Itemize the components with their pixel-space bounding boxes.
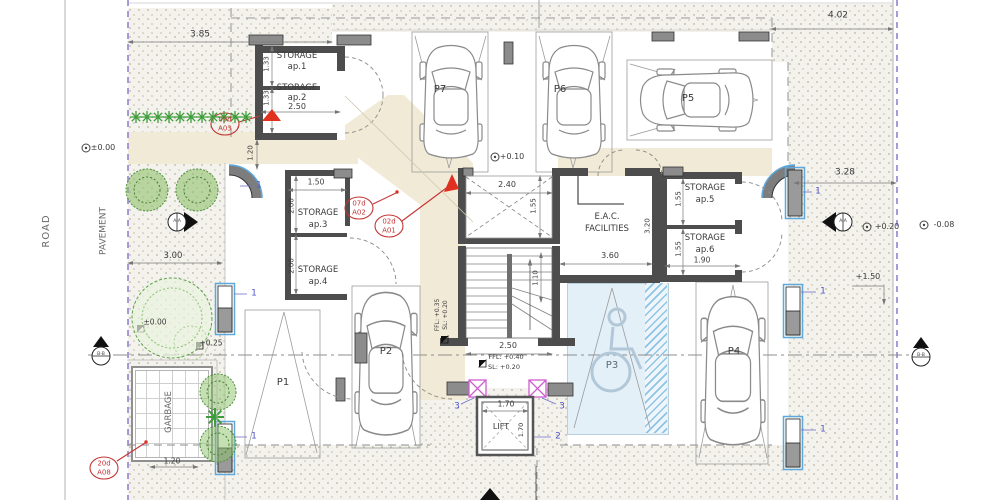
- dim-3-00: 3.00: [164, 252, 183, 261]
- column-label-3a: 3: [454, 403, 460, 412]
- tag-09d: 09d: [218, 117, 231, 124]
- level-sl020-b: SL: +0.20: [488, 364, 520, 371]
- storage5-ap: ap.5: [696, 196, 715, 205]
- level-plus010: +0.10: [500, 153, 525, 161]
- storage2-ap: ap.2: [288, 94, 307, 103]
- dim-1-55-a: 1.55: [676, 191, 683, 207]
- parking-p3-label: P3: [606, 361, 618, 371]
- dim-1-33-b: 1.33: [264, 90, 271, 106]
- section-bb-right: [912, 337, 930, 366]
- dim-3-28: 3.28: [835, 169, 855, 178]
- lift-label: LIFT: [493, 423, 509, 431]
- garbage-label: GARBAGE: [165, 391, 174, 433]
- tag-20d: 20d: [97, 461, 110, 468]
- dim-2-50-stair: 2.50: [499, 342, 517, 350]
- parking-p5-label: P5: [682, 94, 694, 104]
- storage4-label: STORAGE: [298, 266, 338, 275]
- car-p4: [701, 297, 765, 445]
- tag-a08: A08: [97, 470, 111, 477]
- dim-plus150: +1.50: [856, 273, 881, 281]
- parking-p1-label: P1: [277, 378, 289, 388]
- pavement-texture-bottom: [128, 445, 893, 500]
- column-label-1c: 1: [251, 433, 257, 442]
- level-plus025: +0.25: [200, 339, 223, 347]
- storage6-label: STORAGE: [685, 234, 725, 243]
- section-bb-left: [92, 336, 110, 365]
- level-ffl035: FFL: +0.35: [435, 299, 441, 332]
- level-000-a: ±0.00: [91, 144, 116, 152]
- road-label: ROAD: [42, 214, 52, 247]
- eac-label-2: FACILITIES: [585, 225, 629, 234]
- parking-p2-label: P2: [380, 347, 392, 357]
- storage1-ap: ap.1: [288, 63, 307, 72]
- level-000-b: ±0.00: [144, 318, 167, 326]
- car-p2: [355, 292, 417, 435]
- parking-p3-hatch-strip: [645, 283, 667, 433]
- pavement-label: PAVEMENT: [100, 207, 109, 255]
- staircase: [466, 176, 552, 338]
- column-label-1d: 1: [815, 188, 821, 197]
- dim-1-90: 1.90: [694, 256, 711, 264]
- tag-07d: 07d: [352, 201, 365, 208]
- parking-p7-label: P7: [434, 85, 446, 95]
- column-label-3b: 3: [559, 403, 565, 412]
- storage2-label: STORAGE: [277, 84, 317, 93]
- storage5-label: STORAGE: [685, 184, 725, 193]
- column-label-1b: 1: [251, 290, 257, 299]
- dim-3-20: 3.20: [645, 218, 652, 234]
- dim-2-50-storage2: 2.50: [288, 103, 306, 111]
- section-aa-right-label: A-A: [839, 220, 847, 225]
- walkway-left-band: [128, 132, 358, 164]
- floor-plan: ROAD PAVEMENT GARBAGE 3.85 4.02 3.28 3.0…: [0, 0, 1000, 500]
- car-p6: [543, 46, 605, 159]
- column-label-1f: 1: [820, 426, 826, 435]
- dim-1-10: 1.10: [533, 270, 540, 286]
- level-plus020: +0.20: [875, 223, 900, 231]
- dim-1-33-a: 1.33: [264, 56, 271, 72]
- column-label-2: 2: [555, 433, 561, 442]
- dim-2-00-b: 2.00: [289, 258, 296, 274]
- dim-4-02: 4.02: [828, 12, 848, 21]
- storage6-ap: ap.6: [696, 246, 715, 255]
- section-aa-left-label: A-A: [173, 220, 181, 225]
- level-ffl040: FFL: +0.40: [488, 354, 523, 361]
- storage1-label: STORAGE: [277, 52, 317, 61]
- dim-3-85: 3.85: [190, 31, 210, 40]
- dim-1-50: 1.50: [308, 178, 325, 186]
- tag-a01: A01: [382, 228, 396, 235]
- dim-1-70-v: 1.70: [518, 423, 525, 437]
- section-bb-left-label: B-B: [97, 353, 105, 358]
- column-label-1a: 1: [256, 182, 262, 191]
- level-sl020-a: SL: +0.20: [443, 300, 449, 329]
- dim-1-55-b: 1.55: [676, 241, 683, 257]
- eac-label-1: E.A.C.: [594, 213, 619, 222]
- dim-2-40: 2.40: [498, 181, 516, 189]
- pavement-texture-topstrip: [332, 4, 772, 32]
- section-bb-right-label: B-B: [917, 354, 925, 359]
- tag-02d: 02d: [382, 219, 395, 226]
- tag-a03: A03: [218, 126, 232, 133]
- walkway-corridor: [420, 170, 465, 400]
- walkway-right-band: [558, 148, 772, 176]
- storage3-label: STORAGE: [298, 209, 338, 218]
- column-label-1e: 1: [820, 288, 826, 297]
- level-minus008: -0.08: [934, 221, 955, 229]
- dim-1-20-v: 1.20: [248, 145, 255, 161]
- storage3-ap: ap.3: [309, 221, 328, 230]
- dim-1-55-vest: 1.55: [531, 198, 538, 214]
- storage4-ap: ap.4: [309, 278, 328, 287]
- dim-1-70: 1.70: [498, 400, 515, 408]
- tag-a02: A02: [352, 210, 366, 217]
- parking-p6-label: P6: [554, 85, 566, 95]
- car-p5: [641, 69, 754, 131]
- dim-2-00-a: 2.00: [289, 198, 296, 214]
- dim-3-60: 3.60: [601, 252, 619, 260]
- parking-p4-label: P4: [728, 347, 740, 357]
- dim-1-20-garbage: 1.20: [164, 457, 181, 465]
